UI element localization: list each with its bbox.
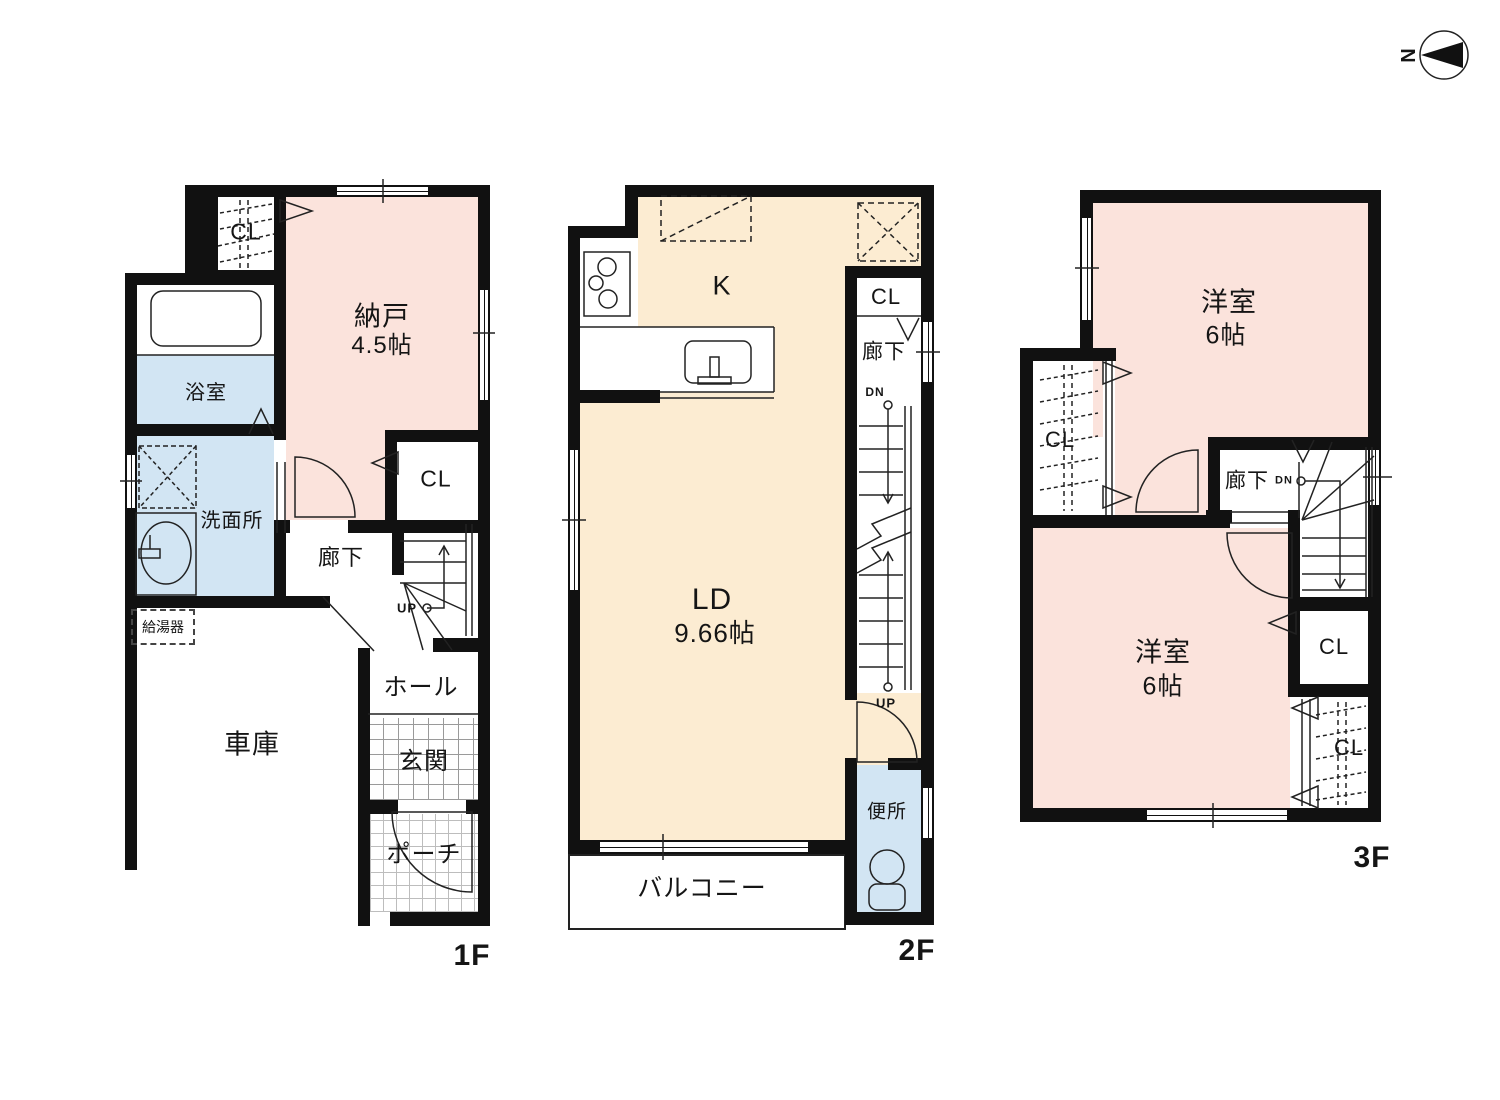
door-arc: [1136, 450, 1198, 512]
stairs-1f: [400, 524, 472, 650]
opening-arrow: [372, 452, 398, 474]
stairs-2f: [857, 401, 911, 691]
opening-arrow: [1292, 786, 1318, 808]
door-arc: [1227, 533, 1292, 598]
counter-sink-icon: [685, 341, 751, 384]
label-garage: 車庫: [224, 732, 280, 759]
folding-door: [1292, 440, 1314, 462]
label-up: UP: [876, 697, 896, 710]
floor-label-2f: 2F: [898, 936, 935, 966]
door-arc: [295, 457, 355, 517]
label-kitchen: K: [712, 273, 731, 300]
label-closet: CL: [871, 286, 901, 308]
bath-folding-door: [249, 409, 273, 434]
label-bedroom: 洋室: [1201, 290, 1257, 317]
linework: [0, 0, 1500, 1100]
f3-linework: [1040, 361, 1374, 808]
label-closet: CL: [1319, 636, 1349, 658]
compass-north-label: N: [1399, 47, 1419, 62]
label-bedroom: 洋室: [1135, 640, 1191, 667]
label-porch: ポーチ: [387, 843, 462, 867]
floor-label-3f: 3F: [1353, 843, 1390, 873]
label-closet: CL: [420, 468, 451, 491]
label-closet: CL: [1045, 429, 1075, 451]
compass-icon: [1420, 31, 1468, 79]
label-corridor: 廊下: [1225, 471, 1269, 492]
opening-arrow: [280, 200, 312, 222]
closet-folding-door: [897, 318, 919, 340]
floor-label-1f: 1F: [453, 941, 490, 971]
f1-linework: [136, 200, 478, 892]
label-washroom: 洗面所: [201, 511, 264, 531]
toilet-icon: [869, 850, 905, 910]
label-living-dining-size: 9.66帖: [674, 620, 756, 646]
label-entrance: 玄関: [399, 750, 449, 774]
opening-arrow: [1269, 612, 1296, 634]
opening-arrow: [1103, 486, 1131, 508]
label-up: UP: [397, 602, 417, 615]
stove-icon: [584, 252, 630, 316]
window-ticks: [120, 179, 1392, 860]
label-bedroom-size: 6帖: [1143, 675, 1184, 700]
label-hall: ホール: [384, 676, 459, 700]
opening-arrow: [1103, 362, 1131, 384]
label-water-heater: 給湯器: [142, 620, 184, 634]
label-dn: DN: [1275, 476, 1293, 487]
door-arc: [857, 702, 917, 762]
label-dn: DN: [865, 386, 884, 398]
label-corridor: 廊下: [318, 547, 364, 569]
label-storage-size: 4.5帖: [351, 334, 412, 358]
label-toilet: 便所: [867, 803, 907, 822]
label-bathroom: 浴室: [185, 383, 227, 403]
sink-icon: [136, 513, 196, 595]
opening-arrow: [1292, 697, 1318, 719]
label-closet: CL: [230, 221, 261, 244]
label-bedroom-size: 6帖: [1206, 324, 1247, 349]
floorplan-canvas: N CL 納戸 4.5帖 浴室 洗面所 廊下 CL UP ホール 玄関 ポーチ …: [0, 0, 1500, 1100]
stairs-3f: [1297, 442, 1374, 597]
label-storage: 納戸: [354, 304, 410, 331]
label-balcony: バルコニー: [637, 877, 767, 902]
label-closet: CL: [1334, 737, 1364, 759]
label-corridor: 廊下: [862, 342, 906, 363]
label-living-dining: LD: [692, 585, 732, 615]
